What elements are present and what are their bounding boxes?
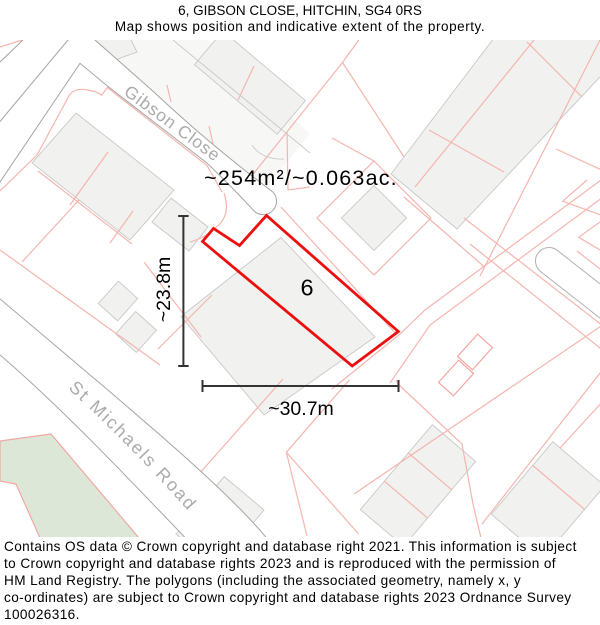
svg-text:~254m²/~0.063ac.: ~254m²/~0.063ac. xyxy=(204,166,398,190)
svg-text:6: 6 xyxy=(300,275,313,301)
svg-text:~30.7m: ~30.7m xyxy=(268,398,334,420)
svg-text:~23.8m: ~23.8m xyxy=(153,257,175,323)
